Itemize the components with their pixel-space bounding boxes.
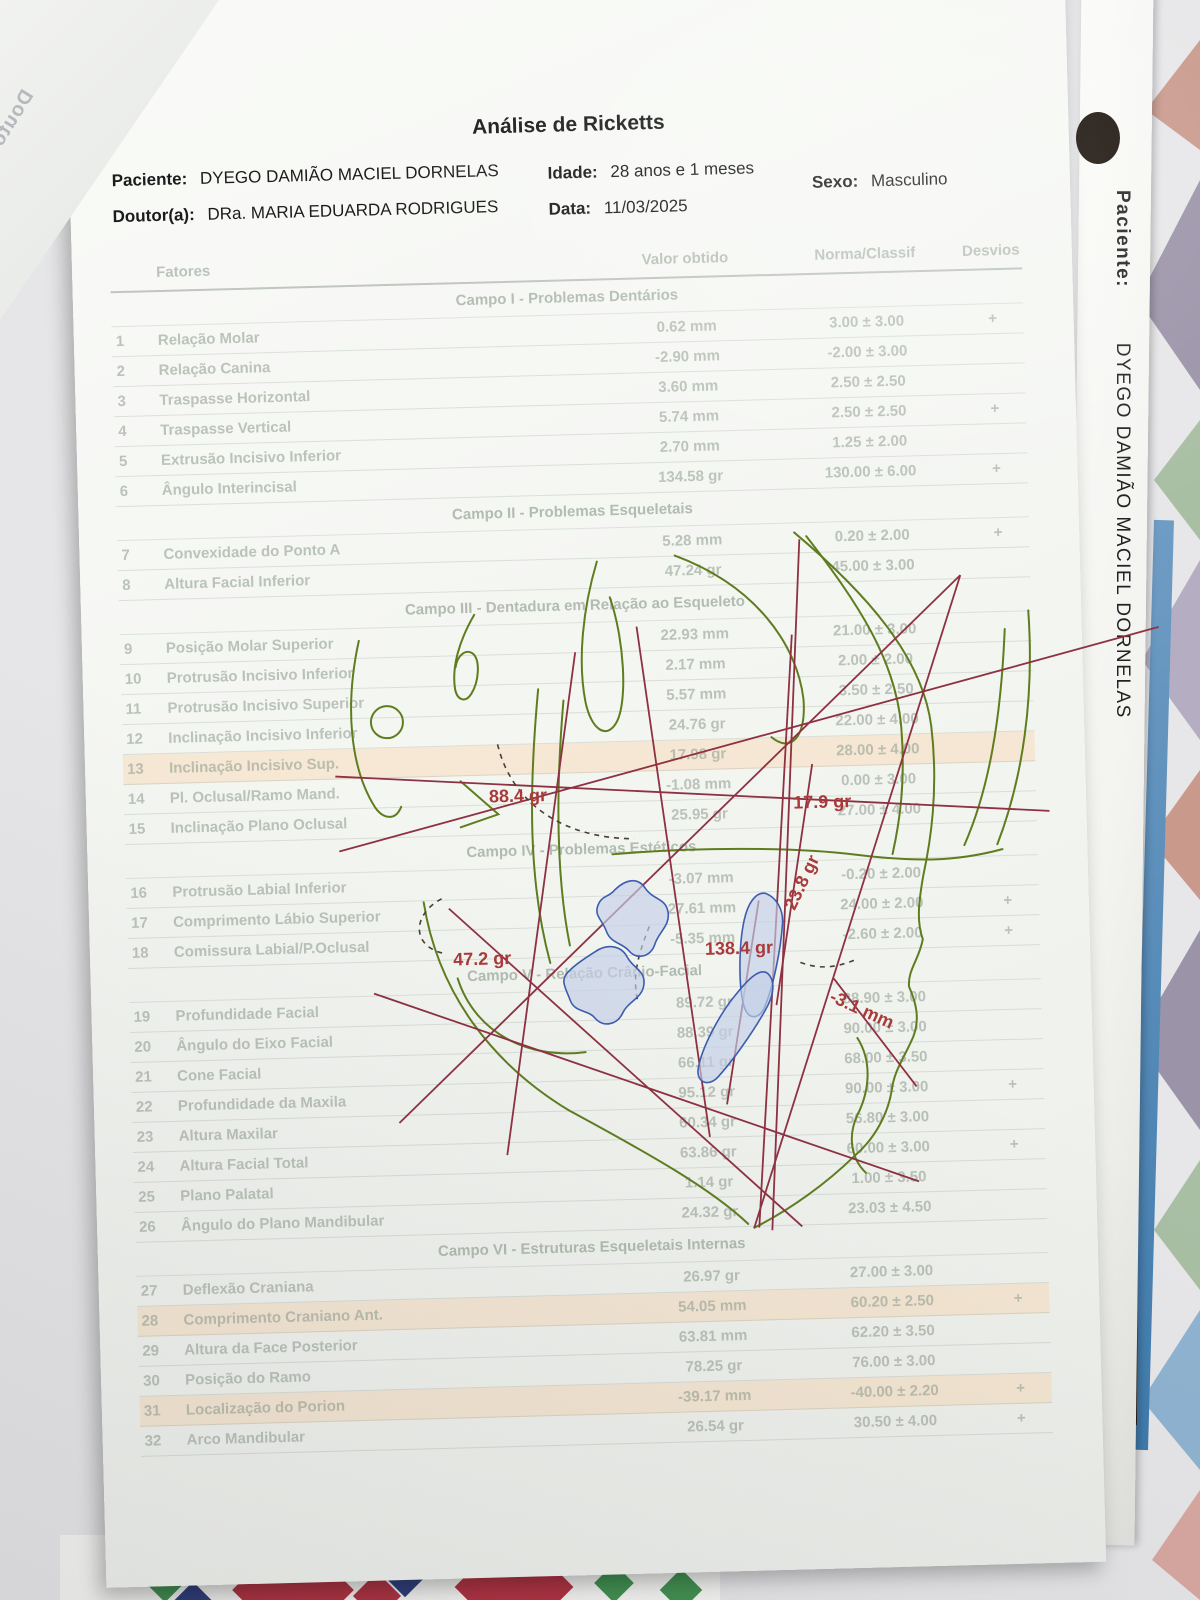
cell-num: 21 bbox=[131, 1062, 178, 1092]
show-through-text: Paciente: DYE Doutor(a): D bbox=[0, 60, 61, 238]
cell-dev: + bbox=[965, 453, 1028, 484]
annotation-31: -3.1 mm bbox=[827, 986, 897, 1032]
cell-num: 3 bbox=[113, 386, 160, 416]
cell-num: 25 bbox=[134, 1182, 181, 1212]
cell-num: 24 bbox=[133, 1152, 180, 1182]
cell-num: 32 bbox=[140, 1426, 187, 1456]
cephalometric-tracing-svg: 88.4 gr 17.9 gr 23.8 gr 47.2 gr 138.4 gr… bbox=[303, 485, 1193, 1298]
cell-num: 11 bbox=[121, 694, 168, 724]
ramus-outline-a bbox=[959, 629, 1011, 845]
cell-norm: -2.00 ± 3.00 bbox=[772, 335, 963, 369]
cell-num: 14 bbox=[123, 784, 170, 814]
cell-value: 0.62 mm bbox=[601, 310, 772, 343]
annotation-88: 88.4 gr bbox=[489, 785, 548, 807]
cell-value: 54.05 mm bbox=[627, 1290, 798, 1323]
cell-dev bbox=[963, 363, 1026, 394]
red-line bbox=[335, 758, 1049, 830]
age-value: 28 anos e 1 meses bbox=[610, 158, 754, 181]
soft-tissue-profile-outer bbox=[736, 529, 946, 1228]
red-line bbox=[494, 652, 588, 1155]
cell-value: -2.90 mm bbox=[602, 340, 773, 373]
cell-dev: + bbox=[990, 1403, 1053, 1434]
symphysis-curve-b bbox=[555, 701, 570, 946]
cell-num: 2 bbox=[112, 356, 159, 386]
red-line bbox=[334, 627, 1164, 852]
cell-num: 10 bbox=[120, 664, 167, 694]
cell-num: 16 bbox=[126, 878, 173, 908]
cell-norm: 2.50 ± 2.50 bbox=[774, 395, 965, 429]
sex-value: Masculino bbox=[871, 169, 948, 190]
cell-value: 63.81 mm bbox=[628, 1320, 799, 1353]
annotation-47: 47.2 gr bbox=[453, 948, 512, 970]
col-header-valor: Valor obtido bbox=[600, 240, 771, 278]
cell-dev: + bbox=[961, 303, 1024, 334]
cell-num: 6 bbox=[115, 476, 162, 506]
teeth-group bbox=[561, 877, 787, 1086]
cell-norm: 62.20 ± 3.50 bbox=[798, 1315, 989, 1349]
punch-hole bbox=[1076, 112, 1120, 164]
cell-num: 1 bbox=[112, 326, 159, 356]
sex-label: Sexo: bbox=[812, 172, 859, 192]
cell-dev bbox=[962, 333, 1025, 364]
cell-norm: -40.00 ± 2.20 bbox=[799, 1375, 990, 1409]
cell-num: 20 bbox=[130, 1032, 177, 1062]
lower-incisor-shape bbox=[695, 972, 775, 1083]
cell-value: 2.70 mm bbox=[604, 430, 775, 463]
red-line bbox=[385, 575, 974, 1123]
cell-num: 27 bbox=[136, 1276, 183, 1306]
upper-molar-shape bbox=[596, 880, 669, 958]
cell-num: 8 bbox=[118, 570, 165, 600]
cell-num: 9 bbox=[120, 634, 167, 664]
cell-norm: 76.00 ± 3.00 bbox=[799, 1345, 990, 1379]
posterior-cranial-curve bbox=[675, 552, 805, 746]
doctor-name: DRa. MARIA EDUARDA RODRIGUES bbox=[207, 197, 498, 224]
photographed-scene: { "document": { "title": "Análise de Ric… bbox=[0, 0, 1200, 1600]
cell-norm: 60.20 ± 2.50 bbox=[797, 1285, 988, 1319]
cell-num: 17 bbox=[127, 908, 174, 938]
patient-name: DYEGO DAMIÃO MACIEL DORNELAS bbox=[200, 161, 499, 188]
cell-num: 28 bbox=[137, 1306, 184, 1336]
arc-47 bbox=[419, 899, 445, 955]
cell-num: 30 bbox=[139, 1366, 186, 1396]
page-title: Análise de Ricketts bbox=[68, 100, 1068, 150]
date-label: Data: bbox=[548, 199, 591, 219]
cell-dev: + bbox=[987, 1283, 1050, 1314]
cell-norm: 2.50 ± 2.50 bbox=[773, 365, 964, 399]
cell-num: 31 bbox=[140, 1396, 187, 1426]
cell-dev bbox=[988, 1313, 1051, 1344]
annotation-138: 138.4 gr bbox=[705, 937, 774, 959]
doctor-label: Doutor(a): bbox=[112, 205, 195, 226]
cell-value: -39.17 mm bbox=[629, 1380, 800, 1413]
cell-num: 19 bbox=[129, 1002, 176, 1032]
date-value: 11/03/2025 bbox=[604, 196, 688, 217]
age-label: Idade: bbox=[547, 162, 598, 182]
arc-17 bbox=[800, 959, 857, 968]
cell-dev bbox=[964, 423, 1027, 454]
cell-norm: 130.00 ± 6.00 bbox=[775, 455, 966, 489]
cell-num: 26 bbox=[135, 1212, 182, 1242]
cell-num: 29 bbox=[138, 1336, 185, 1366]
cell-num: 22 bbox=[132, 1092, 179, 1122]
pterygoid-loop bbox=[579, 561, 625, 732]
col-header-desvios: Desvios bbox=[959, 233, 1022, 269]
cell-num: 7 bbox=[117, 540, 164, 570]
cell-num: 5 bbox=[115, 446, 162, 476]
cell-num: 18 bbox=[128, 938, 175, 968]
cell-value: 26.54 gr bbox=[630, 1410, 801, 1443]
orbit-outline bbox=[371, 706, 404, 739]
cell-dev: + bbox=[964, 393, 1027, 424]
cell-norm: 3.00 ± 3.00 bbox=[771, 305, 962, 339]
cell-value: 3.60 mm bbox=[603, 370, 774, 403]
cell-num: 15 bbox=[124, 814, 171, 844]
col-header-spacer bbox=[110, 256, 157, 291]
cephalometric-lines-red bbox=[329, 530, 1174, 1241]
cell-num: 4 bbox=[114, 416, 161, 446]
ricketts-report-sheet: Análise de Ricketts Paciente: DYEGO DAMI… bbox=[64, 0, 1106, 1588]
annotation-17: 17.9 gr bbox=[793, 791, 852, 813]
cell-num: 23 bbox=[132, 1122, 179, 1152]
cell-value: 78.25 gr bbox=[629, 1350, 800, 1383]
lower-molar-shape bbox=[563, 946, 645, 1025]
cell-dev: + bbox=[989, 1373, 1052, 1404]
cell-norm: 30.50 ± 4.00 bbox=[800, 1405, 991, 1439]
left-profile-curve bbox=[349, 640, 401, 818]
patient-label: Paciente: bbox=[111, 169, 187, 190]
tab-patient-label-key: Paciente: bbox=[1112, 190, 1133, 288]
annotation-labels: 88.4 gr 17.9 gr 23.8 gr 47.2 gr 138.4 gr… bbox=[449, 776, 898, 1044]
cell-num: 13 bbox=[123, 754, 170, 784]
show-through-line2: Doutor(a): D bbox=[0, 86, 39, 224]
nasal-bone-outline bbox=[453, 615, 479, 700]
cell-num: 12 bbox=[122, 724, 169, 754]
cell-value: 5.74 mm bbox=[604, 400, 775, 433]
neck-wave-curve bbox=[849, 1038, 870, 1173]
cell-norm: 1.25 ± 2.00 bbox=[774, 425, 965, 459]
cell-dev bbox=[988, 1343, 1051, 1374]
cell-value: 134.58 gr bbox=[605, 460, 776, 493]
col-header-norma: Norma/Classif bbox=[769, 235, 960, 274]
